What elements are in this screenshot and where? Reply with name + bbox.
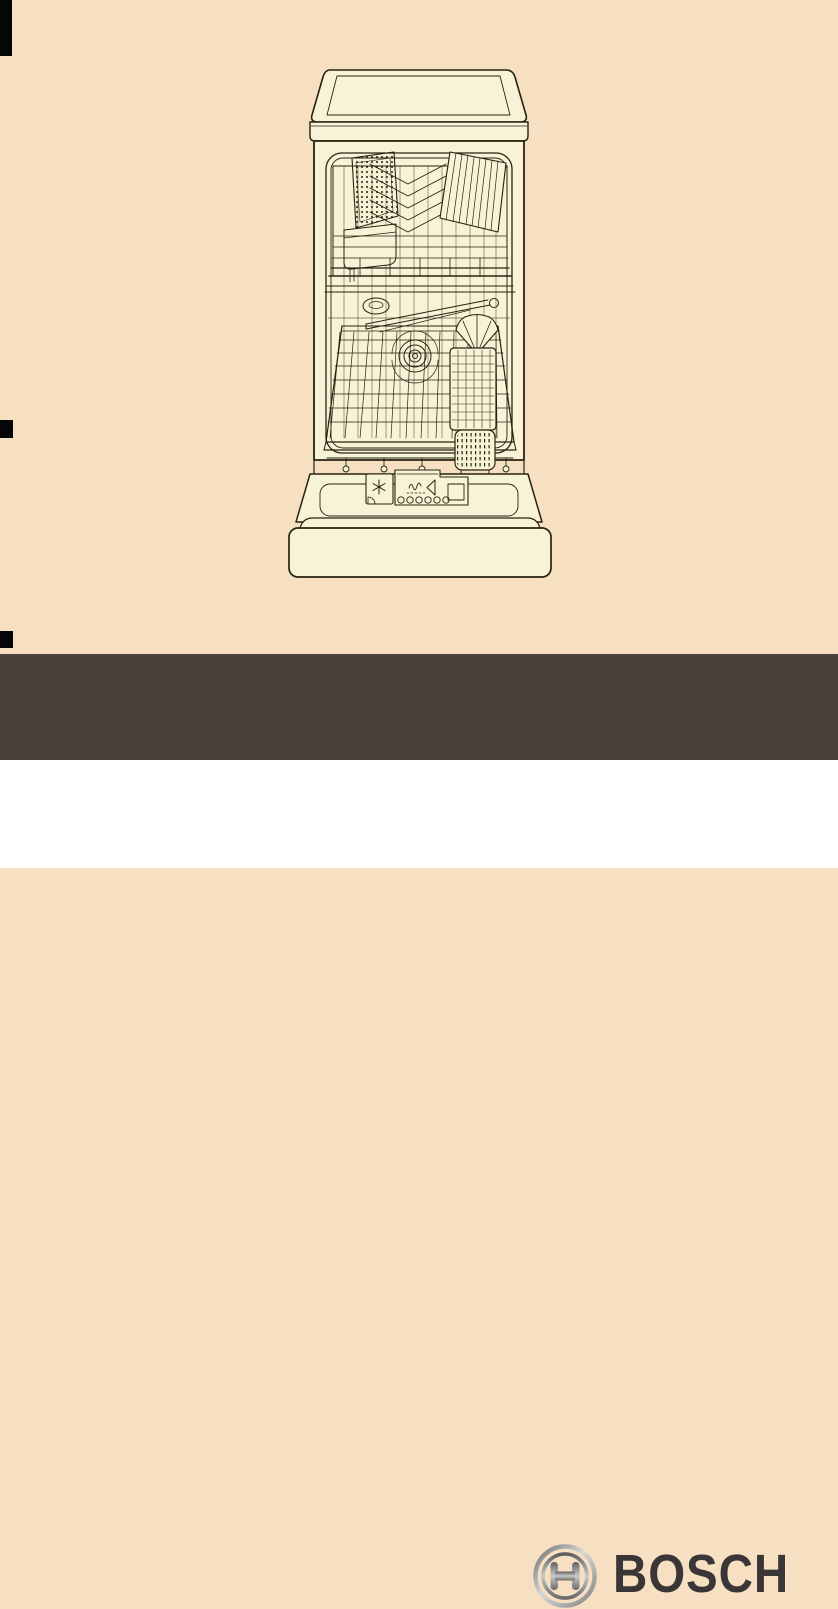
registration-mark-lower (0, 631, 13, 648)
open-door (289, 460, 551, 577)
dishwasher-illustration (280, 60, 560, 585)
registration-mark-middle (0, 420, 13, 438)
bosch-wordmark: BOSCH (613, 1542, 789, 1606)
registration-mark-top (0, 0, 12, 56)
bosch-emblem-icon (532, 1543, 598, 1609)
logo-band: BOSCH (0, 760, 838, 868)
lower-cream-area (0, 868, 838, 1190)
manual-cover-page: { "page": { "kind": "appliance manual co… (0, 0, 838, 1190)
accent-band (0, 654, 838, 760)
